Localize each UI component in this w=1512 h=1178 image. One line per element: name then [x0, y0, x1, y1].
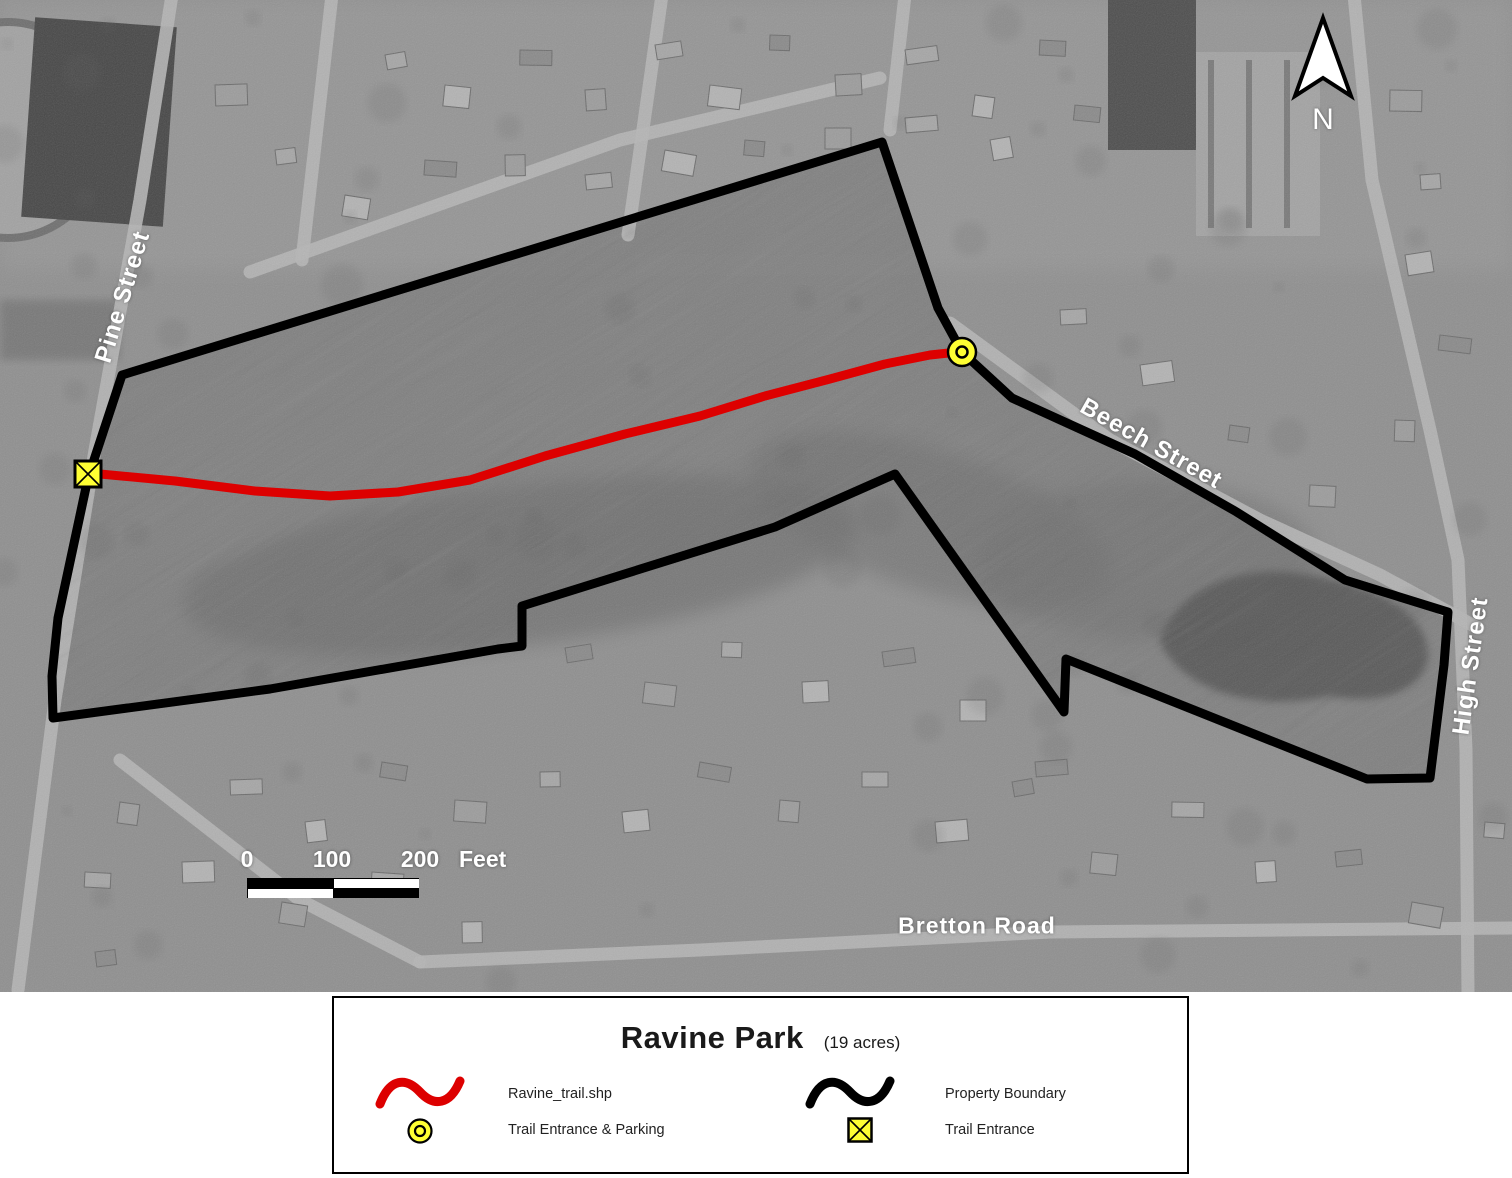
trail-entrance-parking-marker [948, 338, 976, 366]
legend-label-trail: Ravine_trail.shp [508, 1086, 612, 1102]
scale-tick-100: 100 [313, 846, 351, 873]
legend-label-entrance: Trail Entrance [945, 1122, 1035, 1138]
scale-unit: Feet [459, 846, 506, 873]
legend-label-boundary: Property Boundary [945, 1086, 1066, 1102]
legend-subtitle: (19 acres) [824, 1033, 901, 1053]
legend-title: Ravine Park [621, 1020, 804, 1056]
scale-tick-0: 0 [241, 846, 254, 873]
scale-bar: 0 100 200 Feet [200, 840, 530, 902]
trail-line-swatch-icon [374, 1072, 466, 1112]
north-arrow: N [1280, 6, 1366, 136]
entrance-marker-icon [846, 1116, 874, 1144]
scale-tick-200: 200 [401, 846, 439, 873]
street-label-bretton: Bretton Road [898, 913, 1056, 940]
boundary-line-swatch-icon [804, 1072, 896, 1112]
trail-entrance-marker [75, 461, 101, 487]
entrance-parking-marker-icon [405, 1116, 435, 1146]
aerial-map: Pine Street Beech Street High Street Bre… [0, 0, 1512, 992]
map-document: Pine Street Beech Street High Street Bre… [0, 0, 1512, 1178]
legend-panel: Ravine Park (19 acres) Ravine_trail.shp … [332, 996, 1189, 1174]
north-label: N [1280, 103, 1366, 137]
scale-bar-graphic [247, 878, 419, 898]
north-arrow-icon [1280, 6, 1366, 102]
legend-label-entrance-parking: Trail Entrance & Parking [508, 1122, 665, 1138]
